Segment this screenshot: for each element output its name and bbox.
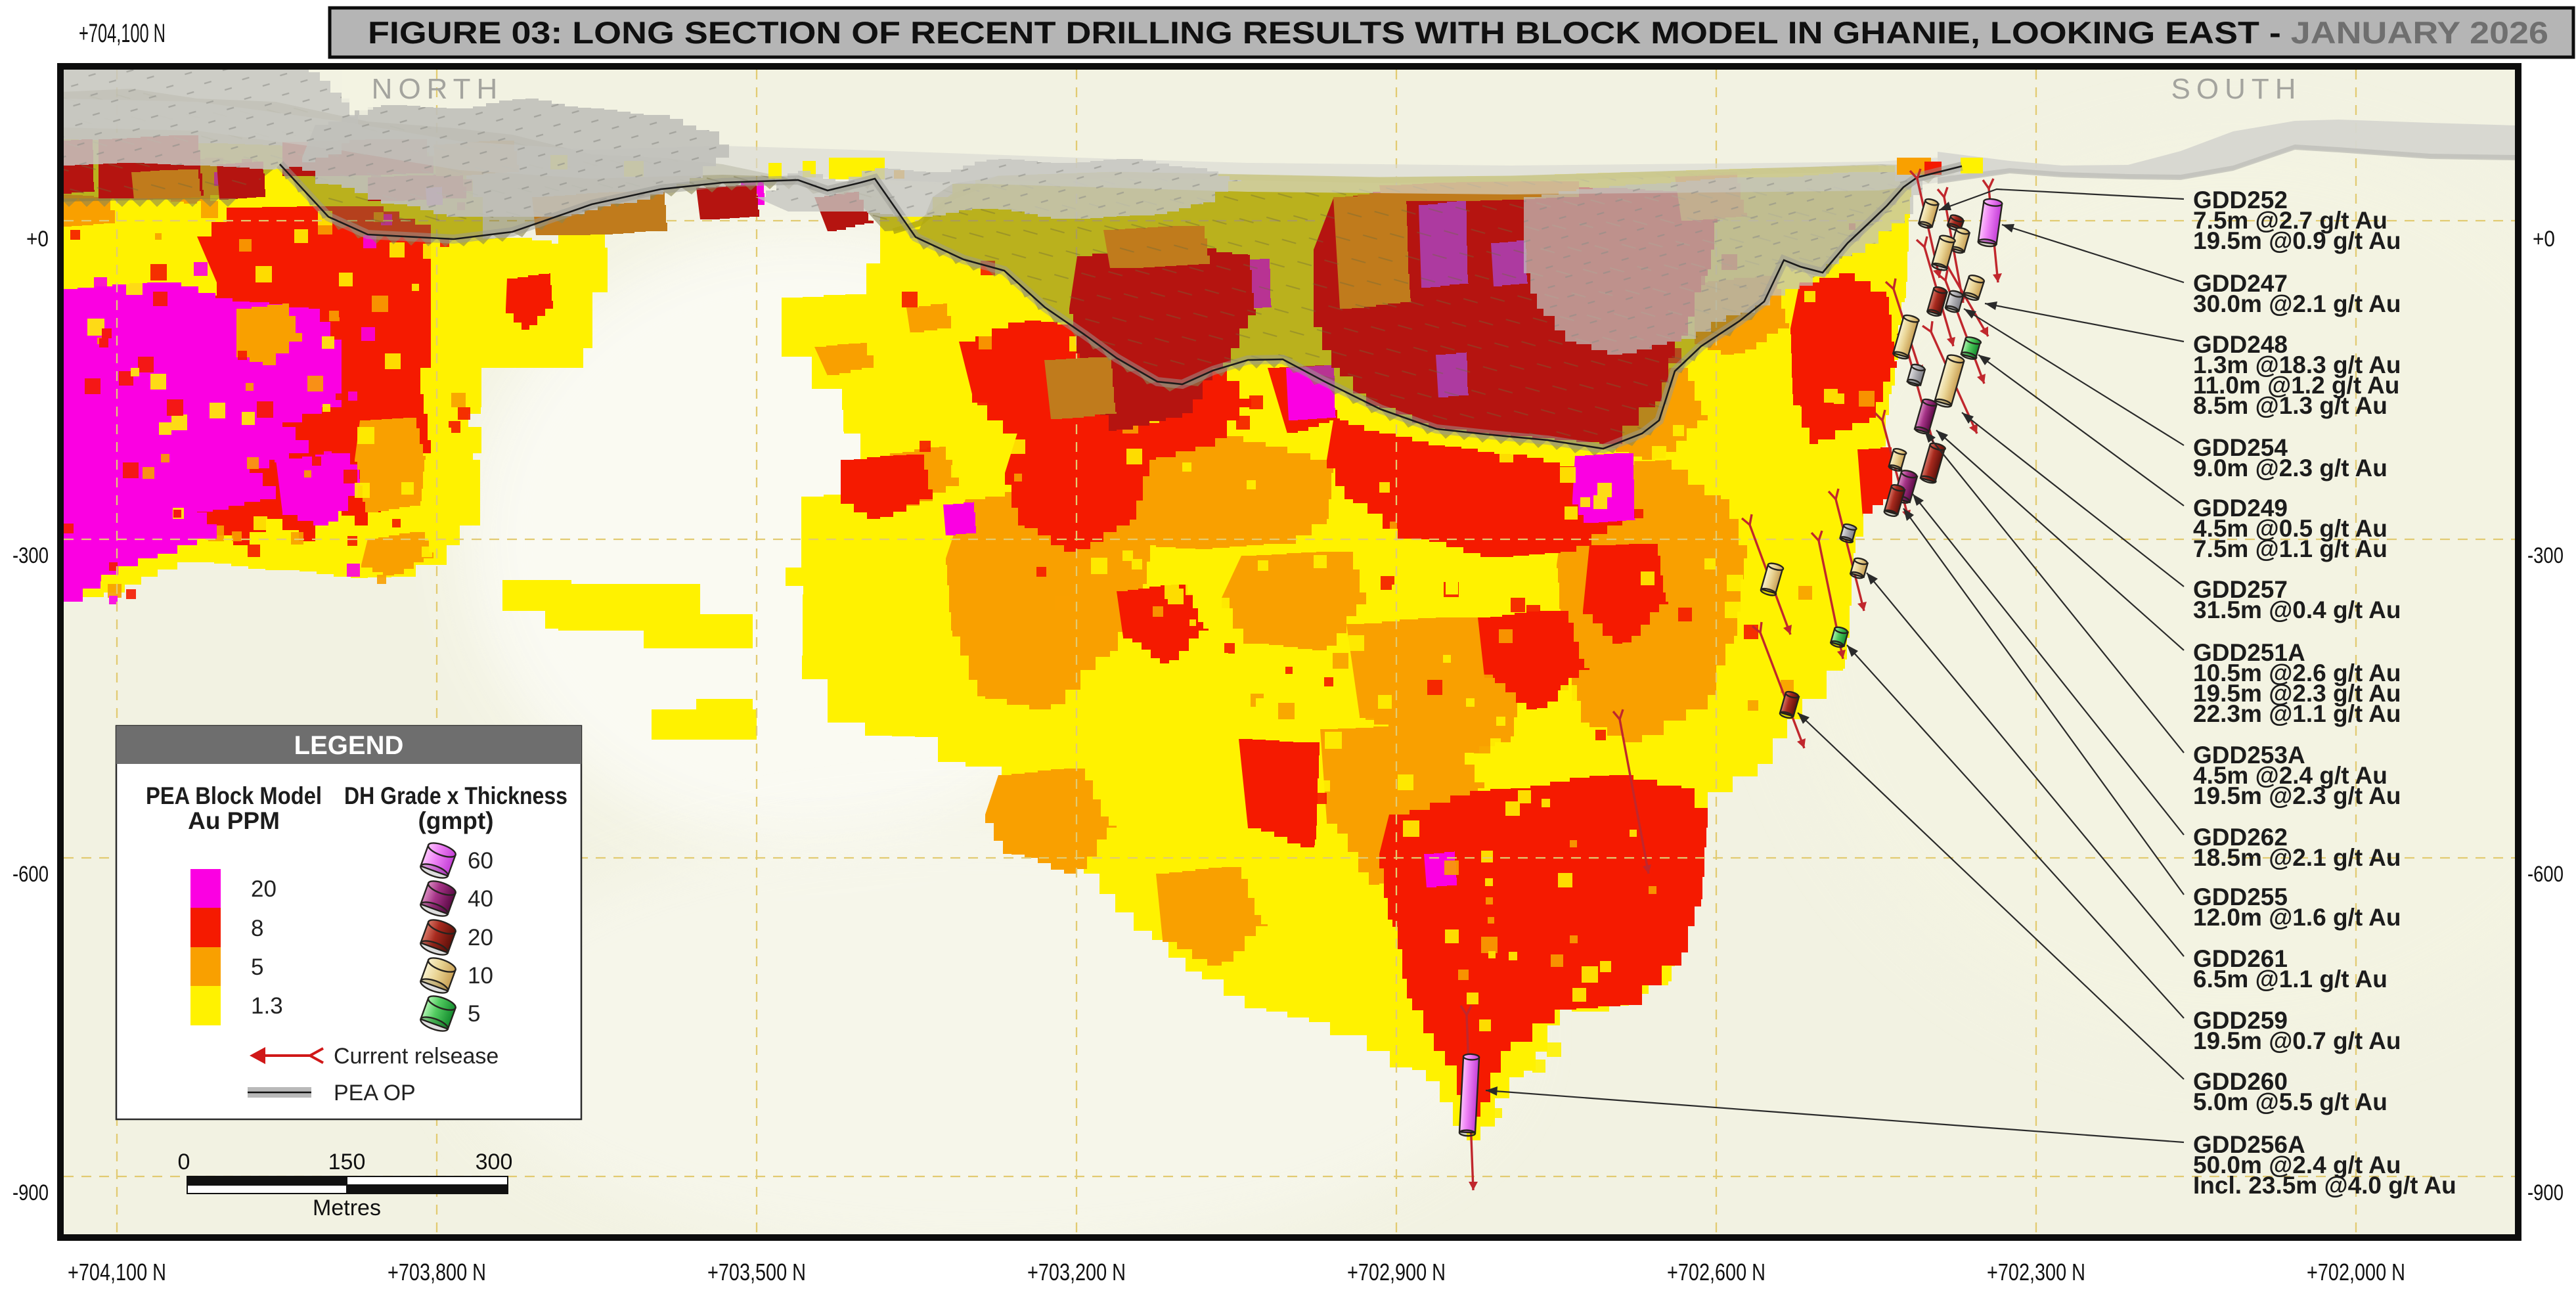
svg-text:22.3m @1.1 g/t Au: 22.3m @1.1 g/t Au [2193,700,2401,727]
svg-text:10: 10 [468,963,493,989]
svg-text:30.0m @2.1 g/t Au: 30.0m @2.1 g/t Au [2193,290,2401,317]
svg-text:300: 300 [476,1150,513,1174]
svg-text:-300: -300 [2527,543,2564,568]
svg-text:-900: -900 [12,1180,49,1205]
svg-text:+703,200 N: +703,200 N [1027,1259,1126,1285]
svg-text:60: 60 [468,848,493,874]
svg-text:-600: -600 [2527,862,2564,887]
svg-text:+0: +0 [2533,227,2555,252]
svg-text:19.5m @2.3 g/t Au: 19.5m @2.3 g/t Au [2193,782,2401,809]
svg-text:0: 0 [178,1150,190,1174]
svg-text:5: 5 [468,1001,480,1027]
svg-text:FIGURE 03: LONG SECTION OF REC: FIGURE 03: LONG SECTION OF RECENT DRILLI… [368,15,2548,50]
svg-text:5.0m @5.5 g/t Au: 5.0m @5.5 g/t Au [2193,1088,2387,1115]
svg-text:+702,900 N: +702,900 N [1347,1259,1446,1285]
svg-text:19.5m @0.9 g/t Au: 19.5m @0.9 g/t Au [2193,227,2401,254]
svg-text:+702,000 N: +702,000 N [2307,1259,2405,1285]
svg-text:LEGEND: LEGEND [294,731,404,760]
svg-text:-900: -900 [2527,1180,2564,1205]
svg-text:20: 20 [468,925,493,950]
svg-text:31.5m @0.4 g/t Au: 31.5m @0.4 g/t Au [2193,596,2401,623]
svg-text:9.0m @2.3 g/t Au: 9.0m @2.3 g/t Au [2193,455,2387,481]
svg-text:6.5m @1.1 g/t Au: 6.5m @1.1 g/t Au [2193,966,2387,993]
svg-text:40: 40 [468,886,493,912]
svg-text:12.0m @1.6 g/t Au: 12.0m @1.6 g/t Au [2193,904,2401,931]
svg-text:-300: -300 [12,543,49,568]
svg-text:18.5m @2.1 g/t Au: 18.5m @2.1 g/t Au [2193,844,2401,871]
svg-text:7.5m @1.1 g/t Au: 7.5m @1.1 g/t Au [2193,535,2387,562]
svg-text:19.5m @0.7 g/t Au: 19.5m @0.7 g/t Au [2193,1027,2401,1054]
svg-text:SOUTH: SOUTH [2171,73,2302,105]
svg-text:+703,500 N: +703,500 N [707,1259,806,1285]
svg-text:DH Grade x Thickness: DH Grade x Thickness [344,782,567,809]
svg-text:PEA Block Model: PEA Block Model [146,782,322,809]
svg-text:150: 150 [328,1150,366,1174]
svg-text:5: 5 [251,954,263,980]
svg-text:+703,800 N: +703,800 N [388,1259,486,1285]
svg-text:8.5m @1.3 g/t Au: 8.5m @1.3 g/t Au [2193,392,2387,419]
svg-text:Current relsease: Current relsease [334,1044,499,1069]
svg-text:+702,600 N: +702,600 N [1667,1259,1765,1285]
svg-text:-600: -600 [12,862,49,887]
svg-text:Au PPM: Au PPM [188,807,280,834]
svg-text:(gmpt): (gmpt) [418,807,493,834]
svg-text:NORTH: NORTH [372,73,504,105]
svg-text:+704,100 N: +704,100 N [79,19,166,48]
svg-text:Incl. 23.5m @4.0 g/t Au: Incl. 23.5m @4.0 g/t Au [2193,1172,2456,1199]
svg-text:20: 20 [251,876,277,902]
svg-text:+702,300 N: +702,300 N [1987,1259,2085,1285]
svg-text:8: 8 [251,916,263,941]
svg-text:+0: +0 [26,227,49,252]
svg-text:1.3: 1.3 [251,993,283,1019]
svg-text:+704,100 N: +704,100 N [68,1259,166,1285]
svg-text:Metres: Metres [313,1195,381,1220]
svg-text:PEA OP: PEA OP [334,1081,416,1106]
